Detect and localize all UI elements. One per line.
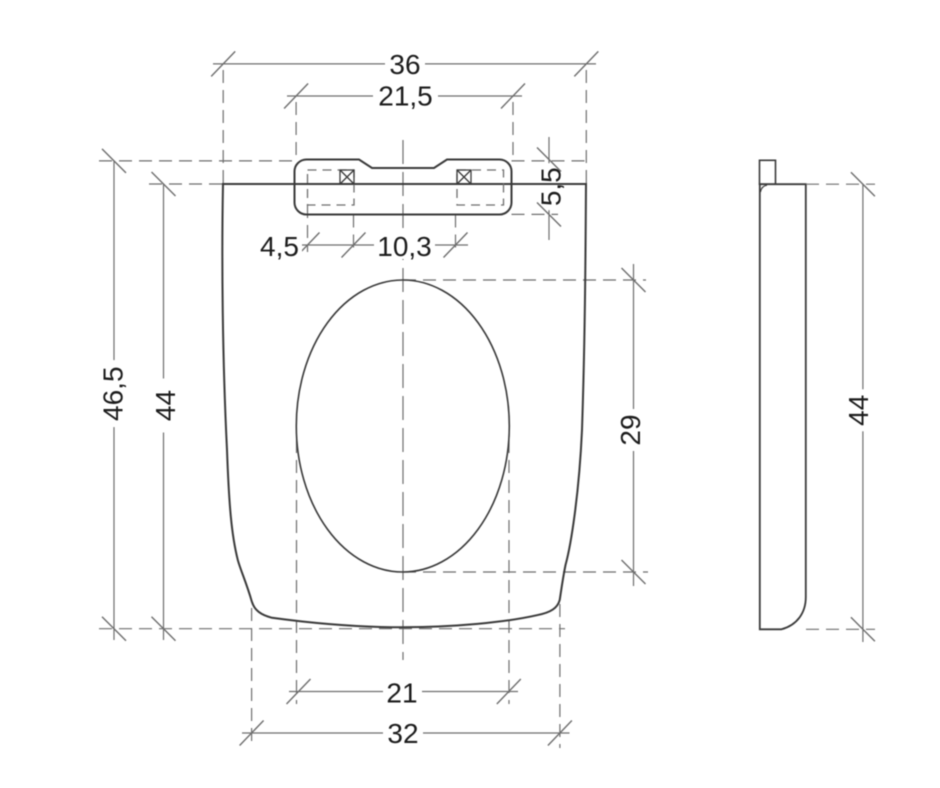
- svg-text:36: 36: [389, 49, 420, 80]
- svg-text:5,5: 5,5: [536, 167, 567, 206]
- svg-text:21,5: 21,5: [378, 81, 433, 112]
- svg-text:44: 44: [843, 395, 874, 426]
- svg-text:32: 32: [387, 718, 418, 749]
- svg-text:46,5: 46,5: [97, 366, 128, 421]
- svg-text:4,5: 4,5: [260, 231, 299, 262]
- svg-text:21: 21: [386, 678, 417, 709]
- svg-text:29: 29: [615, 414, 646, 445]
- svg-text:44: 44: [150, 390, 181, 421]
- svg-text:10,3: 10,3: [377, 231, 432, 262]
